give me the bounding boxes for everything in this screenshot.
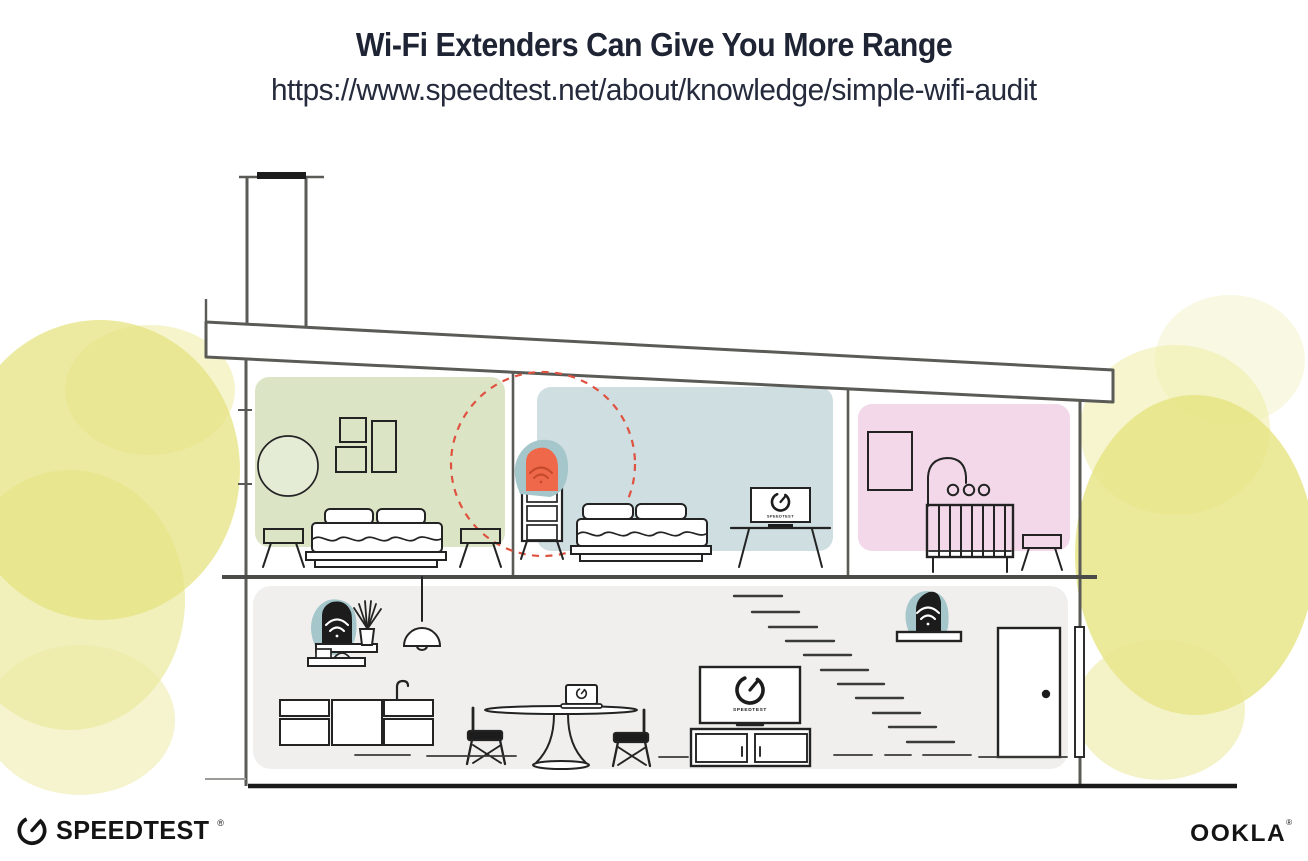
- round-mirror: [258, 436, 318, 496]
- tv-console: SPEEDTEST: [691, 667, 810, 766]
- wifi-router-icon: [322, 601, 352, 644]
- house-illustration: SPEEDTEST: [0, 0, 1308, 861]
- sidelight-window: [1075, 627, 1084, 757]
- wifi-extender-icon: [526, 448, 558, 491]
- ookla-logo: OOKLA®: [1192, 820, 1292, 848]
- lower-shelf: [308, 658, 365, 666]
- registered-mark: ®: [1286, 818, 1292, 827]
- foliage-left: [0, 320, 240, 795]
- wifi-extender-bedroom: [515, 440, 568, 497]
- bed: [306, 509, 446, 567]
- foliage-right: [1075, 295, 1308, 780]
- speedtest-wordmark: SPEEDTEST: [56, 815, 209, 846]
- infographic-canvas: Wi-Fi Extenders Can Give You More Range …: [0, 0, 1308, 861]
- tv-label: SPEEDTEST: [767, 515, 794, 519]
- speedtest-gauge-icon: [16, 814, 49, 847]
- chimney: [239, 172, 324, 328]
- registered-mark: ®: [217, 818, 224, 828]
- entry-door: [998, 628, 1060, 757]
- tv-label: SPEEDTEST: [733, 707, 767, 713]
- ookla-wordmark: OOKLA: [1190, 820, 1286, 848]
- door-knob: [1042, 690, 1050, 698]
- laptop: [561, 685, 602, 708]
- speedtest-logo: SPEEDTEST®: [16, 814, 228, 847]
- pink-nursery-bg: [858, 404, 1070, 551]
